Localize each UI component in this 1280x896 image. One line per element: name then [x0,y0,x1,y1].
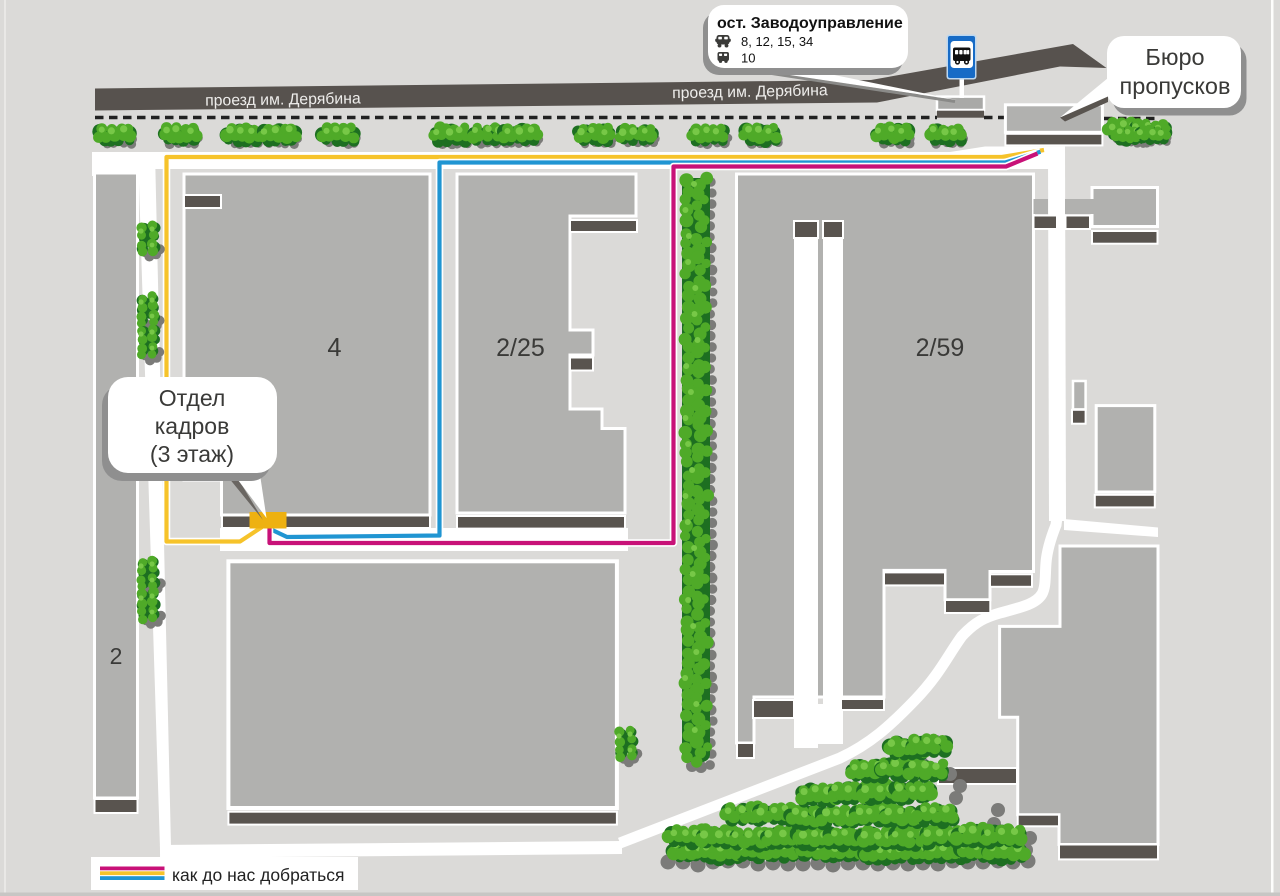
svg-text:пропусков: пропусков [1120,73,1231,99]
svg-text:как до нас добраться: как до нас добраться [172,865,345,885]
svg-text:Бюро: Бюро [1145,44,1204,70]
svg-text:Отдел: Отдел [159,385,226,411]
svg-text:(3 этаж): (3 этаж) [150,441,234,467]
svg-text:кадров: кадров [155,413,230,439]
svg-text:8, 12, 15, 34: 8, 12, 15, 34 [741,34,813,49]
svg-text:10: 10 [741,51,755,66]
svg-text:проезд им. Дерябина: проезд им. Дерябина [672,82,828,102]
svg-text:ост. Заводоуправление: ост. Заводоуправление [717,15,903,32]
svg-text:4: 4 [327,334,341,362]
svg-text:2/59: 2/59 [916,334,965,362]
svg-text:2/25: 2/25 [496,334,545,362]
svg-text:2: 2 [110,643,123,669]
svg-text:проезд им. Дерябина: проезд им. Дерябина [205,90,361,109]
